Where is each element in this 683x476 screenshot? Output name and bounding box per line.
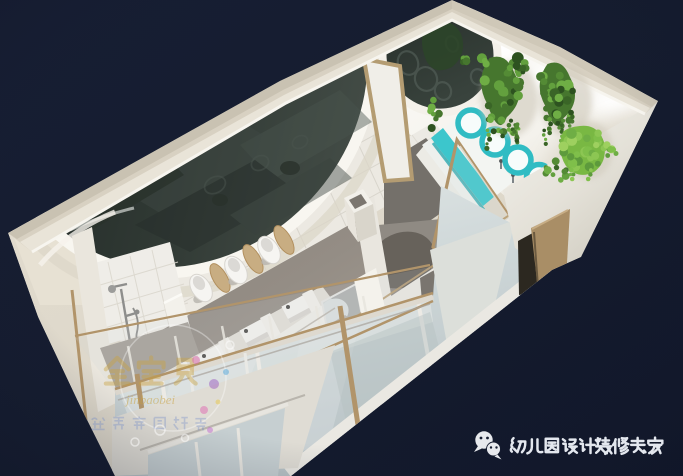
svg-text:jinbaobei: jinbaobei (124, 392, 175, 407)
